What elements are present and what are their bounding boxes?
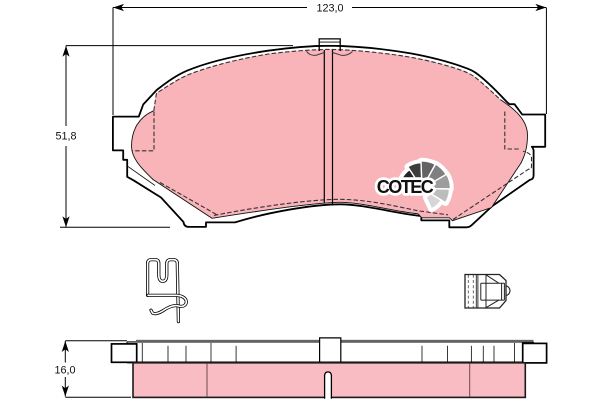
svg-text:123,0: 123,0 [316, 3, 343, 15]
svg-text:COTEC: COTEC [377, 177, 434, 197]
svg-text:51,8: 51,8 [55, 131, 76, 143]
svg-text:16,0: 16,0 [54, 365, 75, 377]
